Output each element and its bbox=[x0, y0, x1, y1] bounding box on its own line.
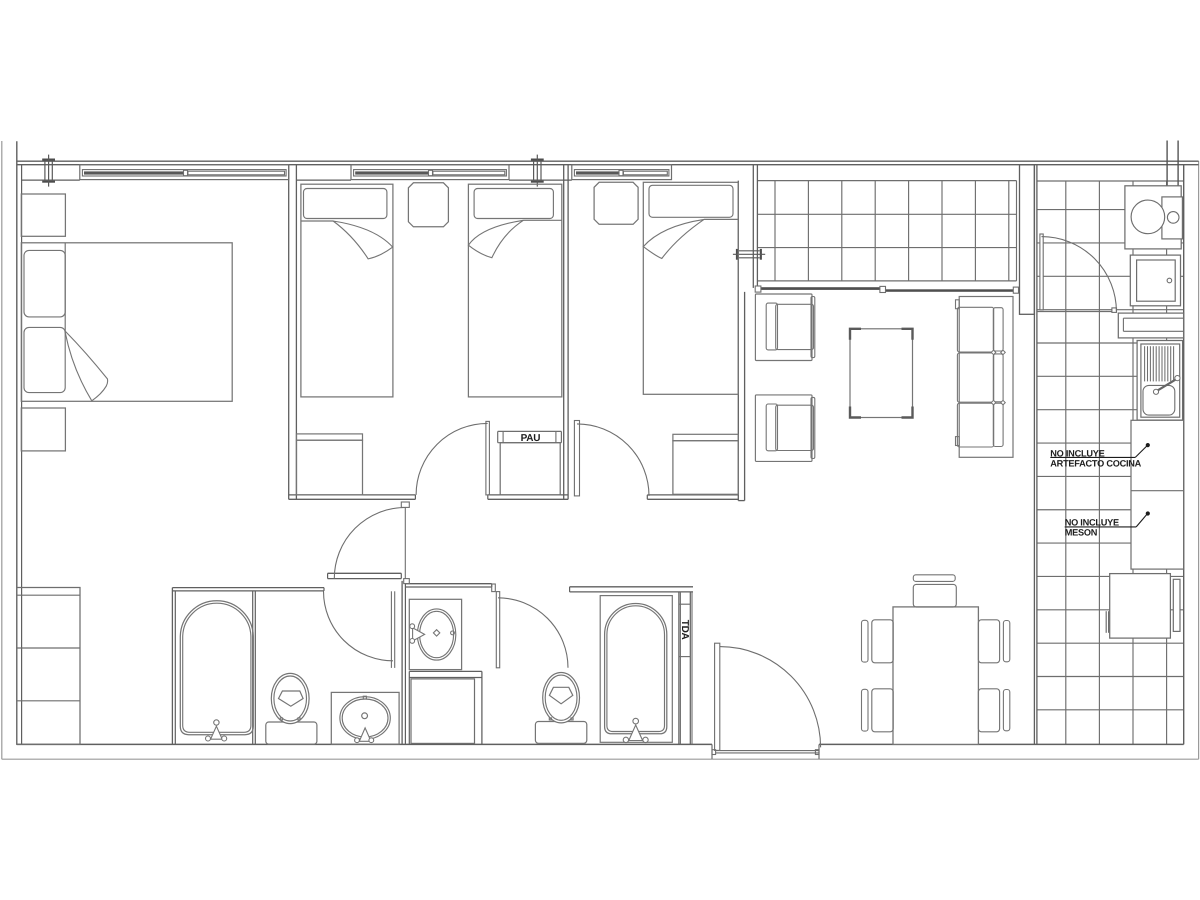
svg-text:MESON: MESON bbox=[1065, 528, 1098, 538]
svg-text:TDA: TDA bbox=[679, 620, 690, 640]
svg-text:PAU: PAU bbox=[521, 433, 541, 444]
svg-text:ARTEFACTO COCINA: ARTEFACTO COCINA bbox=[1050, 458, 1141, 468]
svg-text:NO INCLUYE: NO INCLUYE bbox=[1065, 518, 1119, 528]
